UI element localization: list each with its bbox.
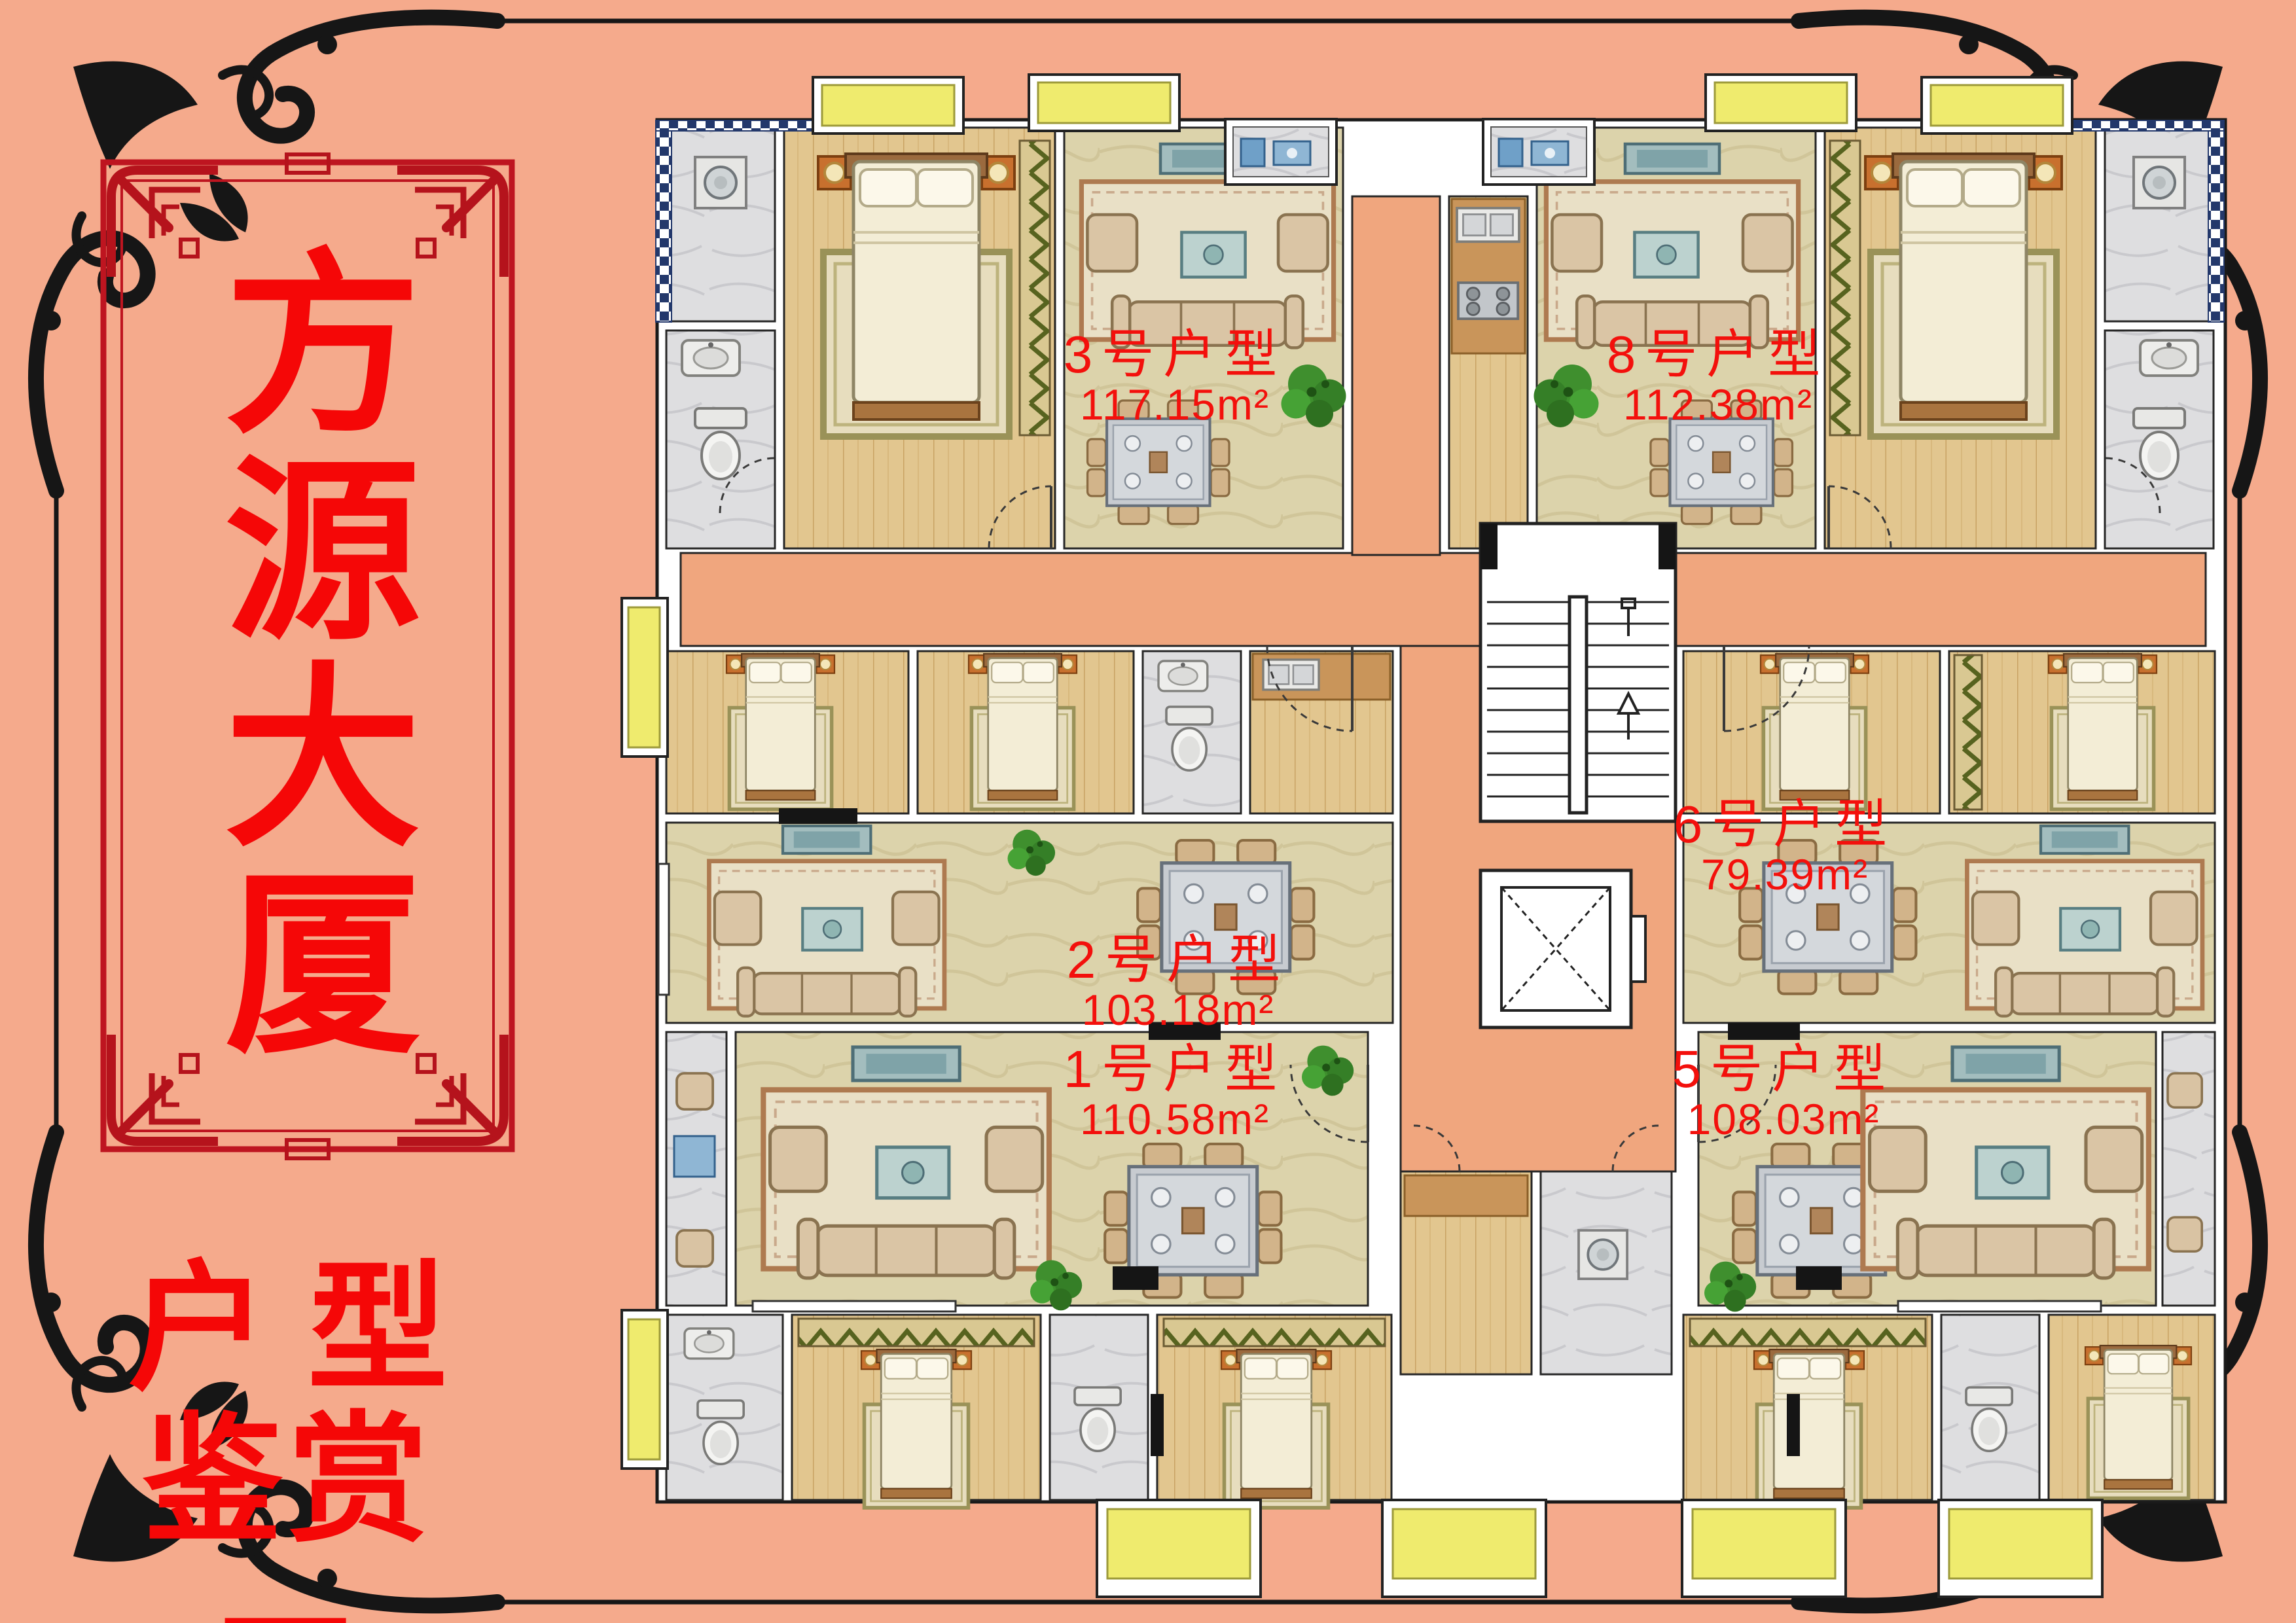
unit-label-3: 3号户型 117.15m² — [1024, 327, 1325, 427]
elevator-x-icon — [1480, 870, 1645, 1027]
staircase-icon — [1480, 524, 1676, 821]
unit-label-8: 8号户型 112.38m² — [1568, 327, 1869, 427]
subtitle-line-2: 鉴赏图 — [79, 1366, 497, 1623]
unit-label-2: 2号户型 103.18m² — [1028, 933, 1329, 1033]
unit-name: 8号户型 — [1568, 327, 1869, 382]
unit-name: 3号户型 — [1024, 327, 1325, 382]
unit-name: 2号户型 — [1028, 933, 1329, 988]
unit-label-1: 1号户型 110.58m² — [1024, 1042, 1325, 1142]
unit-label-5: 5号户型 108.03m² — [1633, 1042, 1934, 1142]
unit-area: 79.39m² — [1634, 852, 1935, 897]
building-title: 方源大厦 — [208, 241, 404, 1068]
poster: 方源大厦 户型 鉴赏图 3号户型 117.15m² 8号户型 112.38m² … — [0, 0, 2296, 1623]
unit-area: 117.15m² — [1024, 382, 1325, 427]
floorplan — [622, 75, 2225, 1597]
kitchen — [1449, 196, 1528, 548]
unit-name: 6号户型 — [1634, 797, 1935, 852]
unit-name: 5号户型 — [1633, 1042, 1934, 1097]
unit-name: 1号户型 — [1024, 1042, 1325, 1097]
unit-area: 110.58m² — [1024, 1097, 1325, 1142]
unit-area: 103.18m² — [1028, 988, 1329, 1033]
unit-label-6: 6号户型 79.39m² — [1634, 797, 1935, 897]
unit-area: 108.03m² — [1633, 1097, 1934, 1142]
unit-area: 112.38m² — [1568, 382, 1869, 427]
